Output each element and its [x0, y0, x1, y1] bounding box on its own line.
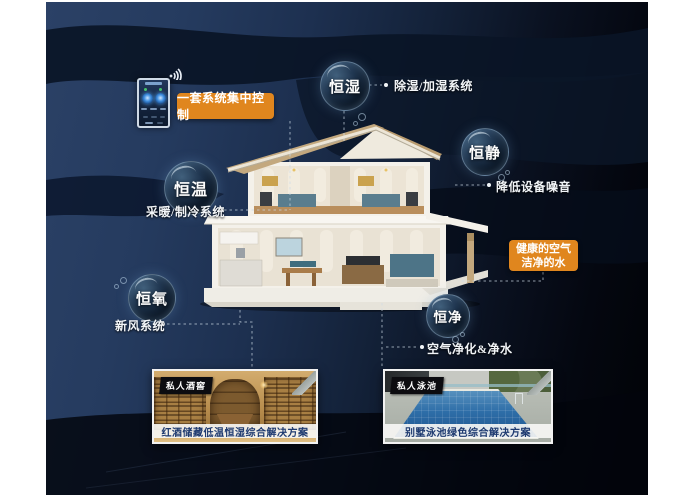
photo-swimming-pool: 私人泳池 别墅泳池绿色综合解决方案	[383, 369, 553, 444]
bubble-constant-humidity: 恒湿	[320, 61, 370, 111]
bubble-label: 恒湿	[329, 76, 361, 97]
panel-dial-left	[142, 93, 153, 104]
cellar-light	[260, 381, 268, 389]
infographic-stage: 一套系统集中控制 健康的空气 洁净的水 恒湿 恒静 恒温 恒氧 恒净 除湿/加湿…	[0, 0, 700, 497]
label-noise-reduction: 降低设备噪音	[496, 178, 571, 195]
panel-readout	[160, 116, 165, 118]
corner-ribbon	[527, 371, 551, 395]
photo-wine-cellar: 私人酒窖 红酒储藏低温恒湿综合解决方案	[152, 369, 318, 444]
bubble-label: 恒净	[434, 306, 463, 326]
decorative-ring	[505, 170, 510, 175]
panel-indicator-left	[144, 88, 147, 91]
photo-tag-wine-cellar: 私人酒窖	[159, 377, 213, 394]
photo-caption-wine-cellar: 红酒储藏低温恒湿综合解决方案	[154, 424, 316, 438]
label-fresh-air-system: 新风系统	[115, 317, 165, 334]
bubble-constant-oxygen: 恒氧	[128, 274, 176, 322]
panel-readout	[143, 116, 148, 118]
panel-readout	[151, 116, 157, 118]
bubble-label: 恒温	[174, 176, 208, 200]
panel-dial-right	[155, 93, 166, 104]
wifi-icon	[167, 60, 187, 80]
bubble-constant-quiet: 恒静	[461, 128, 509, 176]
healthy-air-water-box: 健康的空气 洁净的水	[509, 240, 578, 271]
central-control-label: 一套系统集中控制	[177, 89, 274, 123]
panel-header-bar	[145, 82, 162, 85]
decorative-ring	[358, 113, 366, 121]
smart-control-panel	[137, 78, 170, 128]
house-lower-floor	[212, 224, 446, 288]
house-cutaway-illustration	[190, 112, 490, 312]
panel-readout	[145, 122, 153, 124]
decorative-ring	[460, 332, 465, 337]
label-dehumidify-system: 除湿/加湿系统	[394, 77, 473, 94]
bubble-label: 恒氧	[136, 288, 168, 309]
house-floor-slab	[204, 216, 452, 224]
panel-indicator-right	[159, 88, 162, 91]
info-line1: 健康的空气	[516, 242, 571, 256]
photo-tag-swimming-pool: 私人泳池	[390, 377, 444, 394]
panel-readout	[141, 108, 147, 110]
photo-caption-swimming-pool: 别墅泳池绿色综合解决方案	[385, 424, 551, 438]
panel-readout	[157, 122, 163, 124]
decorative-ring	[120, 277, 127, 284]
central-control-callout: 一套系统集中控制	[177, 93, 274, 119]
label-heating-cooling-system: 采暖/制冷系统	[146, 203, 225, 220]
panel-readout	[160, 108, 166, 110]
pool-ladder	[515, 393, 523, 404]
bubble-label: 恒静	[469, 142, 501, 163]
decorative-ring	[114, 284, 119, 289]
decorative-ring	[353, 121, 358, 126]
corner-ribbon	[292, 371, 316, 395]
label-air-water-purification: 空气净化&净水	[427, 340, 513, 357]
panel-readout	[150, 108, 157, 110]
house-upper-floor	[248, 162, 430, 216]
info-line2: 洁净的水	[522, 256, 566, 270]
